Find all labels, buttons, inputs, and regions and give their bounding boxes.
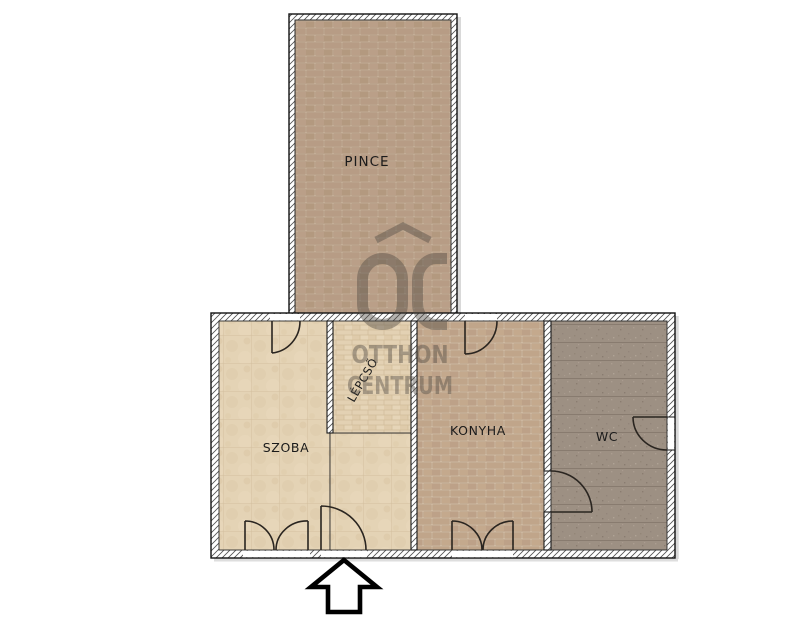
watermark-line1: OTTHON (352, 340, 449, 369)
wall-konyha-wc-upper (544, 321, 551, 471)
room-label-pince: PINCE (344, 154, 389, 170)
room-label-szoba: SZOBA (263, 440, 309, 455)
wall-szoba-stairs (327, 321, 333, 433)
watermark-line2: CENTRUM (347, 371, 453, 400)
szoba-floor (219, 321, 330, 550)
wall-konyha-wc-lower (544, 512, 551, 550)
floor-plan-canvas: PINCE SZOBA LÉPCSŐ KONYHA WC OC OTTHON C… (0, 0, 800, 620)
floor-plan-drawing: PINCE SZOBA LÉPCSŐ KONYHA WC OC OTTHON C… (0, 0, 800, 620)
room-label-konyha: KONYHA (450, 423, 506, 438)
hall-floor (330, 433, 411, 550)
room-label-wc: WC (596, 429, 618, 444)
